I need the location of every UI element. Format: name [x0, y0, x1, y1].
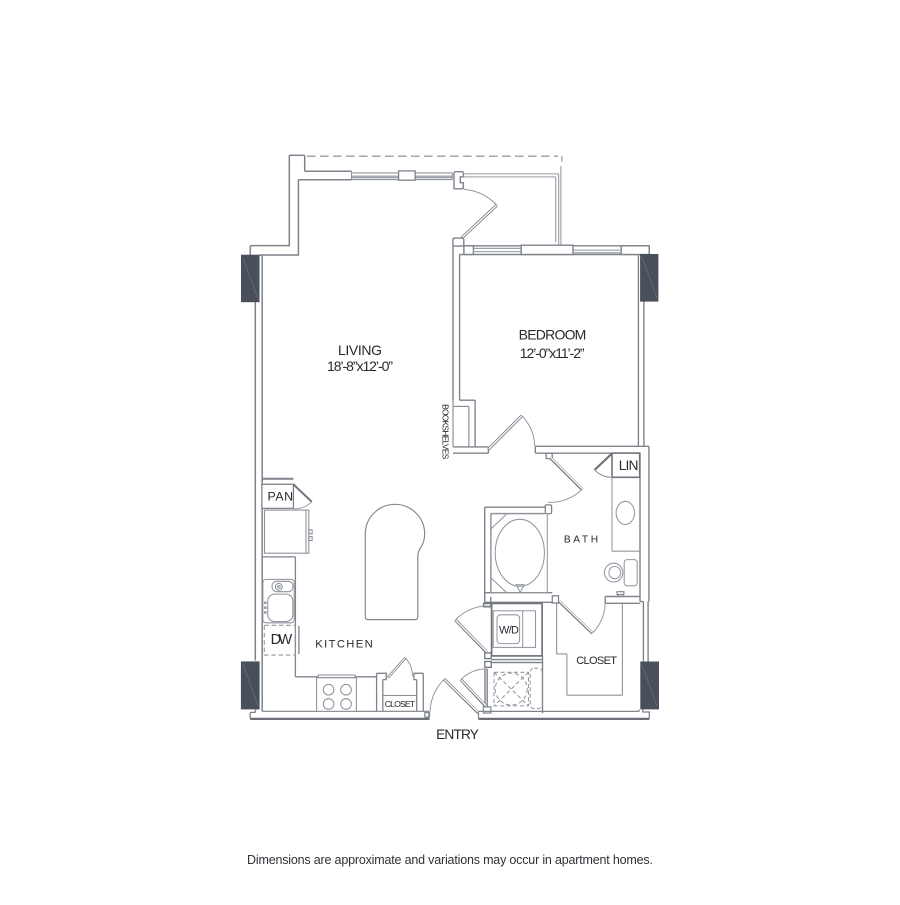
- svg-text:18’-8”x12’-0”: 18’-8”x12’-0”: [327, 358, 393, 374]
- svg-text:LIN: LIN: [619, 458, 639, 473]
- svg-text:CLOSET: CLOSET: [385, 699, 416, 709]
- svg-text:DW: DW: [271, 632, 293, 648]
- svg-text:LIVING: LIVING: [338, 342, 382, 358]
- svg-text:W/D: W/D: [499, 624, 519, 636]
- svg-text:12’-0”x11’-2”: 12’-0”x11’-2”: [520, 345, 585, 361]
- svg-text:BATH: BATH: [564, 534, 598, 545]
- svg-text:BEDROOM: BEDROOM: [519, 327, 587, 343]
- svg-text:PAN: PAN: [268, 490, 294, 504]
- svg-text:KITCHEN: KITCHEN: [315, 638, 372, 650]
- svg-text:BOOKSHELVES: BOOKSHELVES: [441, 404, 451, 460]
- svg-text:CLOSET: CLOSET: [576, 655, 617, 667]
- svg-text:Dimensions are approximate and: Dimensions are approximate and variation…: [247, 853, 653, 867]
- svg-text:ENTRY: ENTRY: [436, 727, 479, 742]
